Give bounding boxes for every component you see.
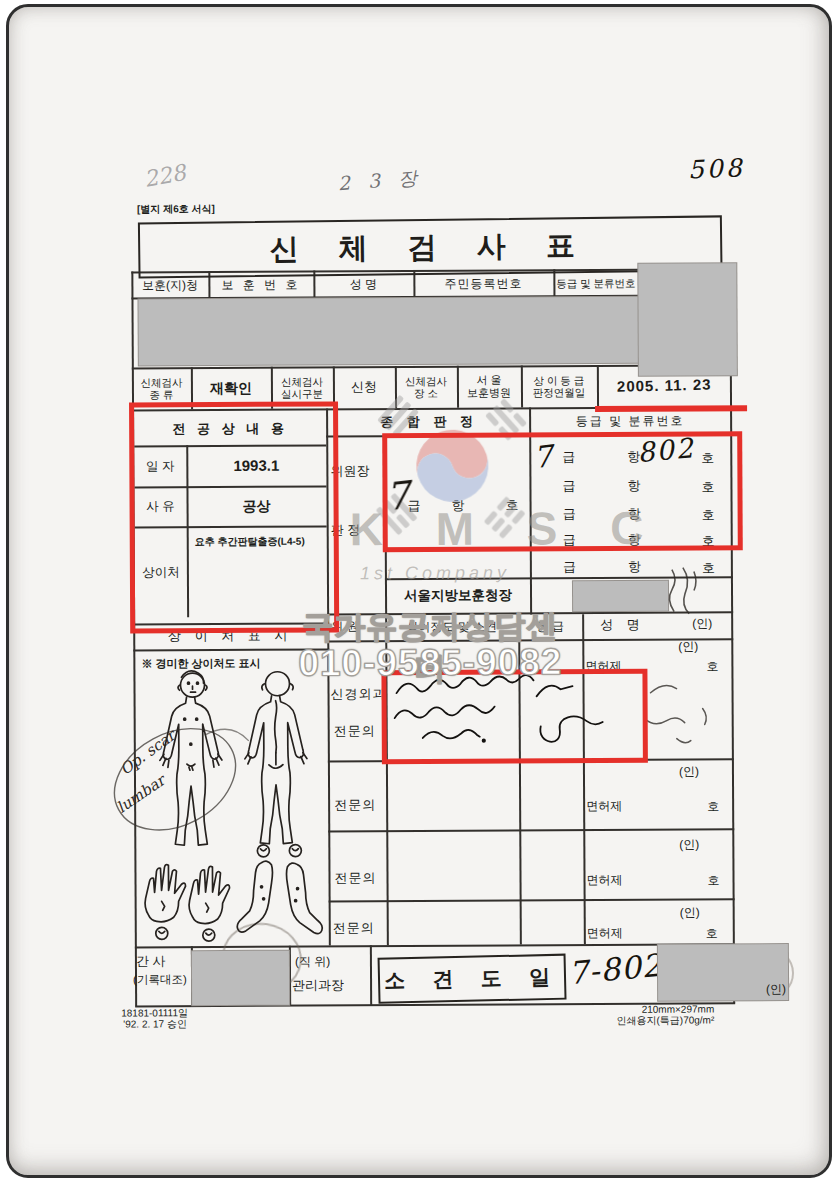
- label-line: 간 사: [136, 953, 166, 968]
- license-ho-3: 호: [707, 873, 719, 887]
- license-label-3: 면허제: [586, 873, 622, 887]
- header-cell-veteran-no: 보 훈 번 호: [208, 272, 313, 299]
- specialist-title-2: 전문의: [334, 797, 376, 813]
- redaction-box-secretary: [192, 951, 289, 1006]
- secretary-sub-label: (기록대조): [133, 973, 187, 987]
- header-cell-grade-no: 등급 및 분류번호: [553, 270, 638, 296]
- seal-row-1: (인): [678, 640, 698, 654]
- header-cell-resident-no: 주민등록번호: [413, 270, 553, 297]
- grid-line: [328, 828, 734, 832]
- handwritten-page-number-right: 508: [687, 153, 745, 184]
- value: 신청: [351, 380, 377, 395]
- grade-number-header: 등급 및 분류번호: [531, 408, 729, 433]
- bottom-seal-label: (인): [766, 982, 786, 996]
- header-label: 등급 및 분류번호: [576, 414, 685, 429]
- scanned-document-page: 228 2 3 장 508 [별지 제6호 서식] 신 체 검 사 표 보훈(지…: [0, 0, 835, 1179]
- company-watermark: 1st Company: [360, 563, 510, 585]
- specialist-title-1: 전문의: [334, 723, 376, 739]
- license-label-2: 면허제: [586, 799, 622, 813]
- label-line: 실시구분: [281, 387, 323, 400]
- grade-row-5-hang: 항: [628, 559, 641, 574]
- header-label: 주민등록번호: [444, 276, 522, 291]
- header-cell-name: 성 명: [313, 271, 413, 298]
- handwritten-page-number-center: 2 3 장: [337, 165, 424, 197]
- stamp-remnant-marks: [664, 565, 704, 617]
- seal-row-4: (인): [680, 906, 700, 920]
- label-line: 상 이 등 급: [533, 374, 584, 387]
- phone-watermark: 010-9585-9082: [295, 641, 565, 684]
- form-title: 신 체 검 사 표: [269, 228, 591, 266]
- committee-seal-header: (인): [692, 616, 712, 630]
- decision-date: 2005. 11. 23: [616, 376, 711, 396]
- handwritten-page-number-left: 228: [142, 160, 188, 192]
- exam-date-label: 상 이 등 급 판정연월일: [521, 367, 597, 405]
- physical-exam-form: 228 2 3 장 508 [별지 제6호 서식] 신 체 검 사 표 보훈(지…: [0, 0, 835, 1179]
- left-hand-figure: [145, 865, 186, 940]
- form-reference-label: [별지 제6호 서식]: [137, 203, 215, 215]
- scar-annotation: Op. scar lumbar: [107, 717, 258, 853]
- position-label: (직 위): [295, 954, 330, 968]
- red-underline-date: [595, 405, 747, 412]
- footer-paper-type: 인쇄용지(특급)70g/m²: [572, 1014, 714, 1027]
- header-label: 보 훈 번 호: [221, 278, 300, 293]
- opinion-stamp-text: 소 견 도 일: [384, 964, 560, 993]
- label-line: 판정연월일: [533, 386, 586, 399]
- header-cell-agency: 보훈(지)청: [131, 272, 208, 298]
- left-foot-figure: [237, 845, 273, 932]
- header-label: 보훈(지)청: [142, 278, 198, 292]
- seal-row-2: (인): [679, 765, 699, 779]
- value-line: 서 울: [476, 374, 501, 387]
- committee-name-header: 성 명: [600, 617, 645, 633]
- highlight-box-grades: [382, 431, 743, 552]
- scar-note-line2: lumbar: [113, 770, 170, 817]
- scar-note-line1: Op. scar: [117, 725, 181, 779]
- grid-line: [370, 945, 372, 1005]
- manager-label: 관리과장: [292, 977, 344, 993]
- license-ho-4: 호: [706, 926, 718, 940]
- redaction-box-office-seal: [573, 581, 668, 611]
- specialist-title-3: 전문의: [334, 870, 376, 886]
- value: 재확인: [210, 380, 252, 397]
- license-ho-1: 호: [706, 659, 718, 673]
- label-line: 신체검사: [140, 376, 182, 389]
- redaction-box-identity: [138, 297, 638, 366]
- highlight-box-injury: [129, 401, 339, 633]
- grid-line: [329, 898, 735, 902]
- label-line: 종 류: [149, 388, 173, 401]
- header-label: 등급 및 분류번호: [556, 277, 635, 290]
- office-label: 서울지방보훈청장: [404, 588, 512, 604]
- handwritten-bottom-grade: 7-802: [567, 947, 664, 992]
- grade-row-5-geup: 급: [563, 559, 576, 574]
- header-label: 성 명: [350, 277, 377, 291]
- footer-approved-date: '92. 2. 17 승인: [123, 1018, 187, 1030]
- right-foot-figure: [286, 845, 322, 934]
- seal-row-3: (인): [679, 838, 699, 852]
- specialist-title-4: 전문의: [333, 920, 375, 936]
- right-hand-figure: [189, 866, 230, 941]
- label-line: 신체검사: [405, 374, 447, 387]
- opinion-stamp-box: 소 견 도 일: [378, 954, 567, 1004]
- handwritten-signature-scribble: [642, 678, 722, 748]
- label-line: 신체검사: [281, 375, 323, 388]
- license-label-4: 면허제: [587, 926, 623, 940]
- license-ho-2: 호: [707, 799, 719, 813]
- redaction-box-grade-column: [638, 263, 737, 376]
- secretary-label: 간 사: [136, 953, 166, 968]
